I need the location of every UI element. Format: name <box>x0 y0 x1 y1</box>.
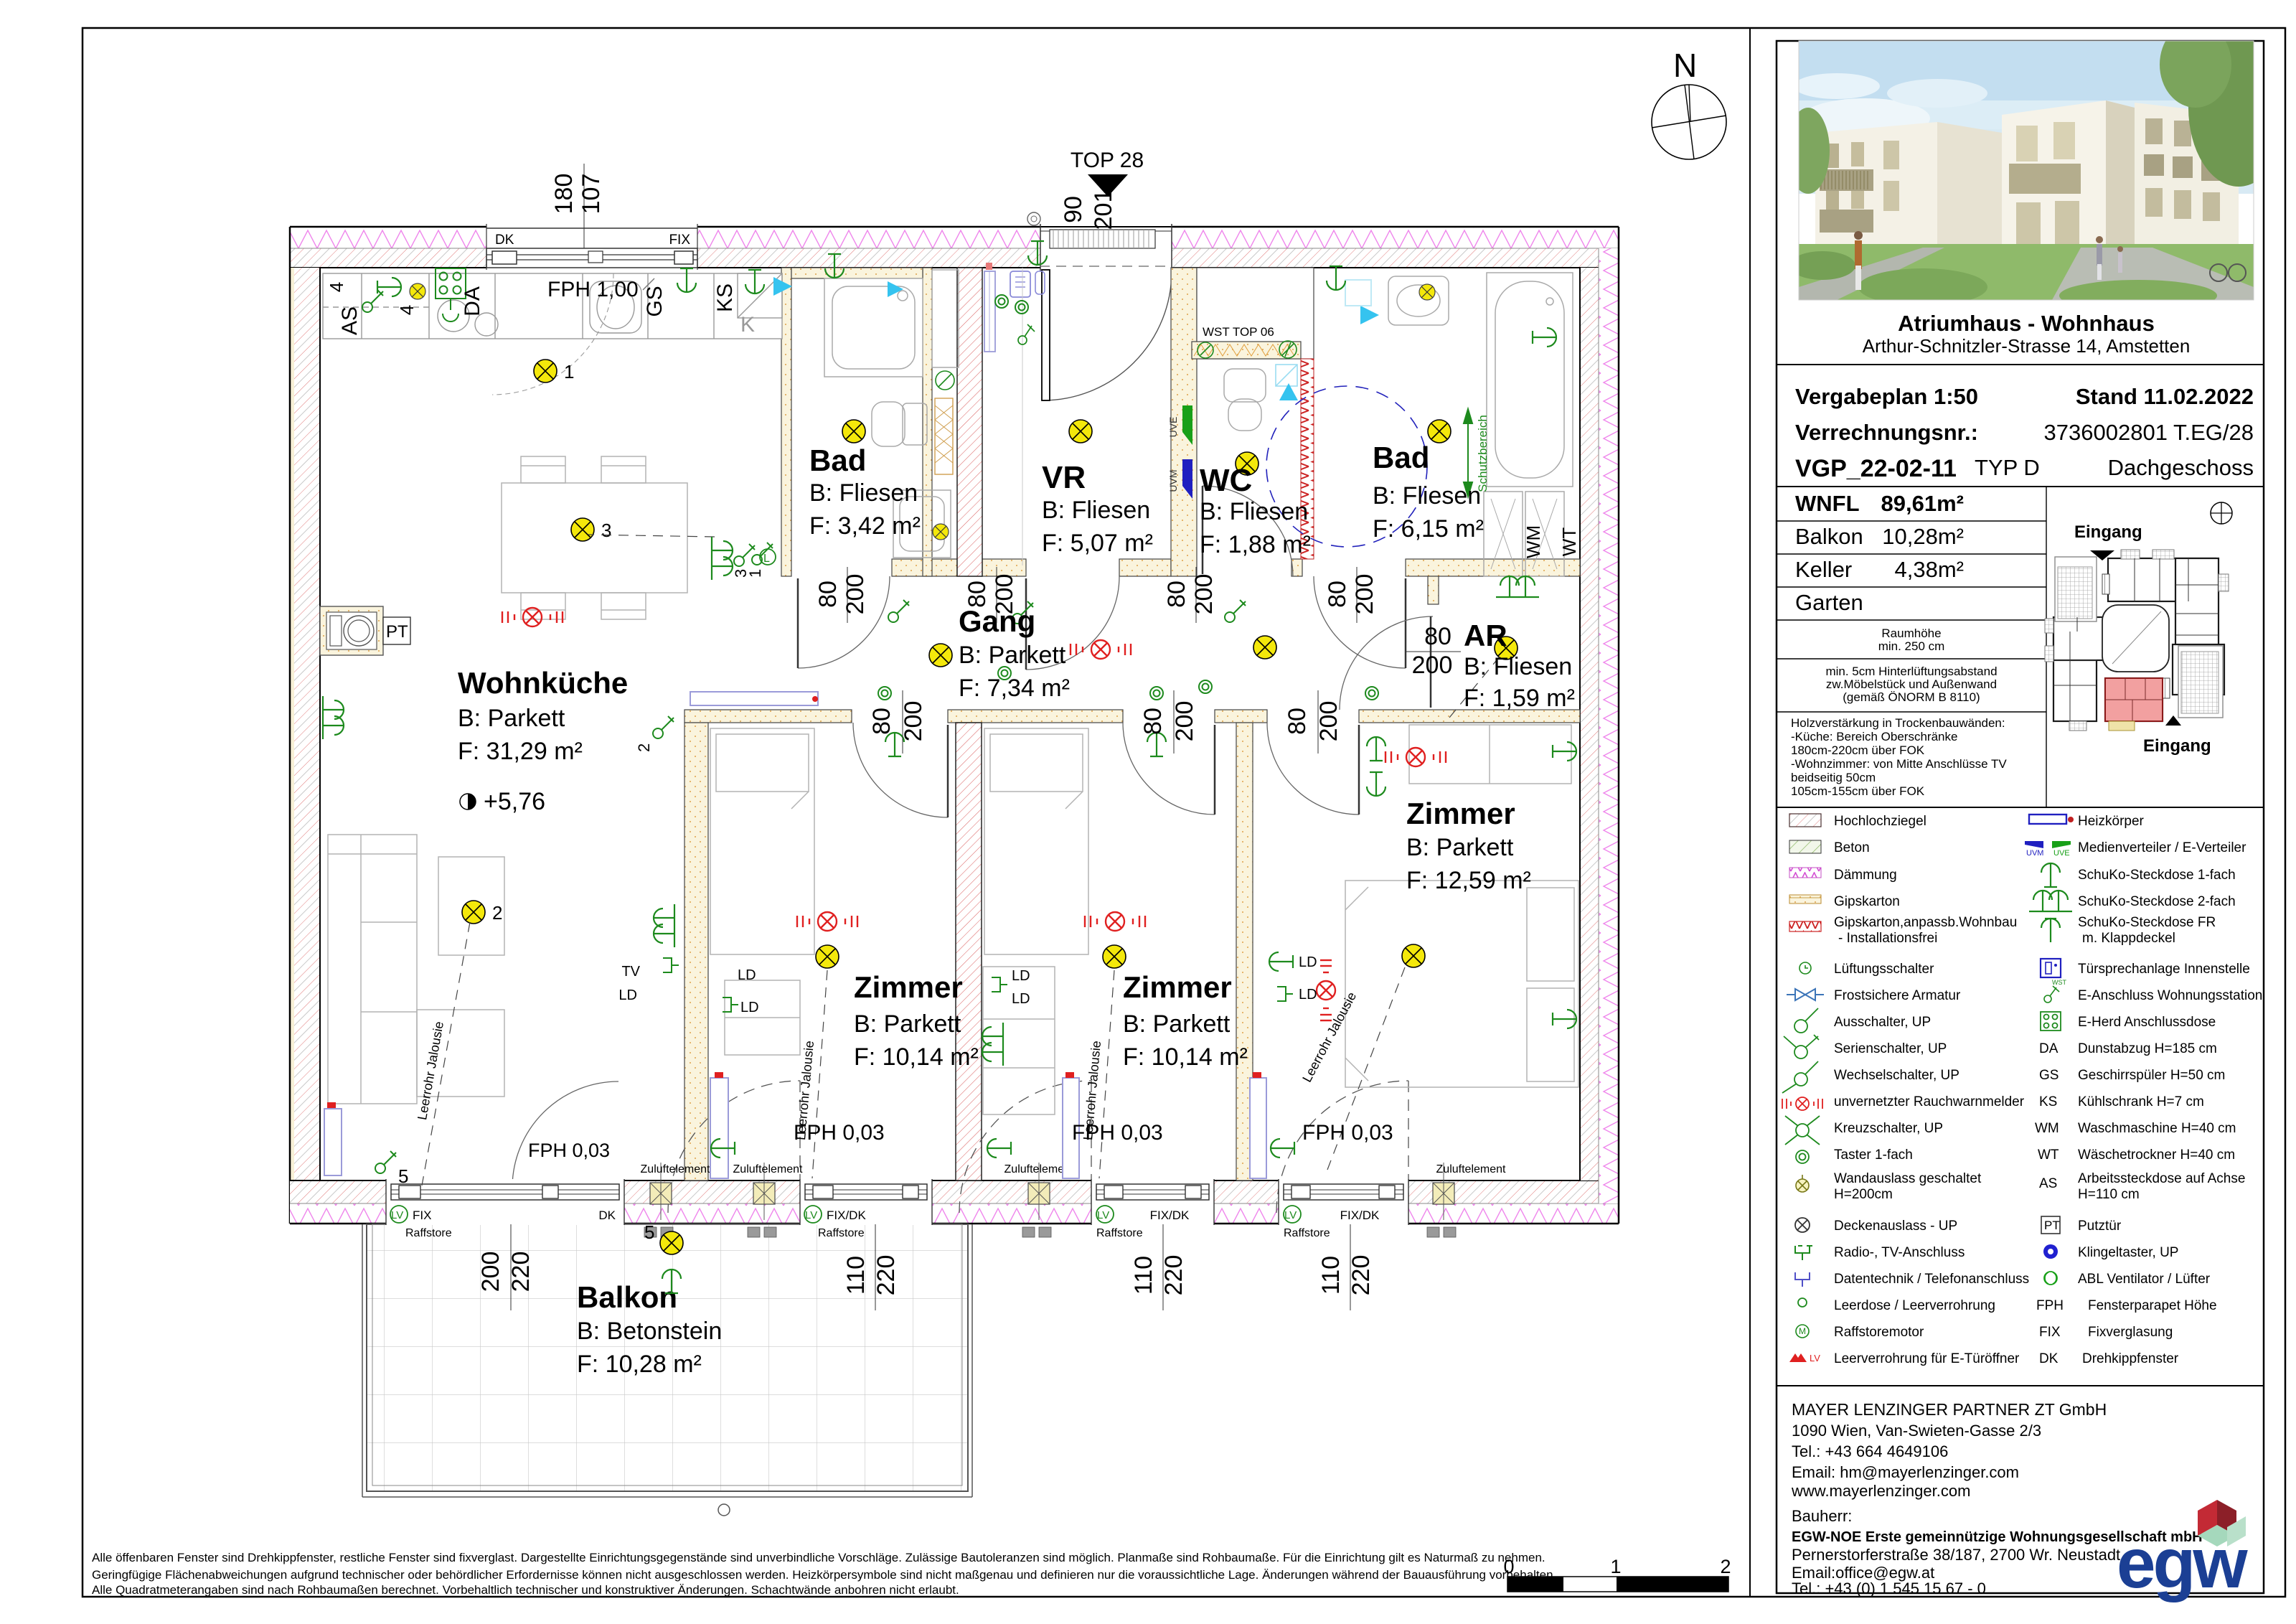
svg-text:Türsprechanlage Innenstelle: Türsprechanlage Innenstelle <box>2078 962 2250 977</box>
svg-text:FIX/DK: FIX/DK <box>1340 1208 1380 1222</box>
svg-text:Deckenauslass - UP: Deckenauslass - UP <box>1834 1219 1957 1234</box>
svg-text:Wohnküche: Wohnküche <box>458 666 628 700</box>
svg-text:Gipskarton,anpassb.Wohnbau: Gipskarton,anpassb.Wohnbau <box>1834 915 2017 930</box>
svg-text:F: 10,14 m²: F: 10,14 m² <box>1123 1043 1248 1071</box>
svg-text:Garten: Garten <box>1795 590 1863 615</box>
svg-text:DK: DK <box>495 233 514 248</box>
svg-text:FIX/DK: FIX/DK <box>827 1208 866 1222</box>
svg-text:Heizkörper: Heizkörper <box>2078 814 2145 829</box>
svg-text:WST TOP 06: WST TOP 06 <box>1203 325 1274 339</box>
svg-text:ABL Ventilator / Lüfter: ABL Ventilator / Lüfter <box>2078 1272 2211 1287</box>
svg-text:220: 220 <box>507 1252 535 1292</box>
svg-text:Eingang: Eingang <box>2143 736 2211 756</box>
svg-text:GS: GS <box>2039 1068 2059 1083</box>
svg-text:MAYER LENZINGER PARTNER ZT Gm: MAYER LENZINGER PARTNER ZT GmbH <box>1792 1400 2107 1419</box>
svg-text:PT: PT <box>386 622 408 642</box>
svg-text:Raffstore: Raffstore <box>405 1227 452 1239</box>
svg-text:PT: PT <box>2044 1219 2060 1232</box>
svg-text:Leerdose / Leerverrohrung: Leerdose / Leerverrohrung <box>1834 1298 1995 1313</box>
svg-text:-Küche: Bereich Oberschränke: -Küche: Bereich Oberschränke <box>1791 730 1957 743</box>
svg-text:www.mayerlenzinger.com: www.mayerlenzinger.com <box>1791 1482 1970 1500</box>
svg-text:Zuluftelement: Zuluftelement <box>733 1163 803 1175</box>
svg-text:UVM: UVM <box>2026 849 2043 858</box>
svg-text:VGP_22-02-11: VGP_22-02-11 <box>1795 455 1957 482</box>
svg-text:Wandauslass geschaltet: Wandauslass geschaltet <box>1834 1171 1982 1186</box>
svg-text:LV: LV <box>1097 1209 1109 1221</box>
svg-text:90: 90 <box>1060 196 1087 223</box>
svg-text:3: 3 <box>601 520 611 541</box>
svg-text:Klingeltaster, UP: Klingeltaster, UP <box>2078 1245 2178 1260</box>
svg-text:m. Klappdeckel: m. Klappdeckel <box>2082 931 2175 946</box>
svg-text:110: 110 <box>842 1256 870 1295</box>
svg-text:1090 Wien, Van-Swieten-Gasse 2: 1090 Wien, Van-Swieten-Gasse 2/3 <box>1792 1422 2041 1440</box>
svg-text:Email: hm@mayerlenzinger.com: Email: hm@mayerlenzinger.com <box>1792 1463 2019 1481</box>
svg-text:B: Fliesen: B: Fliesen <box>1464 653 1572 680</box>
svg-text:B: Parkett: B: Parkett <box>1123 1010 1231 1038</box>
svg-text:Alle Quadratmeterangaben sind: Alle Quadratmeterangaben sind nach Rohba… <box>92 1583 959 1597</box>
svg-text:LD: LD <box>738 967 756 983</box>
svg-text:WT: WT <box>1558 527 1580 557</box>
svg-text:SchuKo-Steckdose FR: SchuKo-Steckdose FR <box>2078 915 2216 930</box>
svg-text:200: 200 <box>1190 574 1218 615</box>
svg-text:80: 80 <box>868 708 895 735</box>
svg-text:200: 200 <box>1412 652 1453 679</box>
svg-text:Hochlochziegel: Hochlochziegel <box>1834 814 1926 829</box>
svg-text:zw.Möbelstück und Außenwand: zw.Möbelstück und Außenwand <box>1826 677 1997 691</box>
svg-text:Fixverglasung: Fixverglasung <box>2088 1325 2173 1340</box>
svg-text:B: Fliesen: B: Fliesen <box>809 479 918 507</box>
svg-text:2: 2 <box>492 902 502 924</box>
svg-text:Taster 1-fach: Taster 1-fach <box>1834 1147 1913 1163</box>
svg-text:Eingang: Eingang <box>2074 522 2142 542</box>
svg-text:WM: WM <box>1523 525 1544 558</box>
svg-text:Balkon: Balkon <box>577 1280 677 1314</box>
svg-text:B: Betonstein: B: Betonstein <box>577 1318 722 1345</box>
svg-text:+5,76: +5,76 <box>484 788 545 815</box>
svg-text:Ausschalter, UP: Ausschalter, UP <box>1834 1015 1931 1030</box>
svg-text:Dunstabzug H=185 cm: Dunstabzug H=185 cm <box>2078 1041 2217 1056</box>
svg-text:200: 200 <box>842 574 869 615</box>
svg-text:B: Fliesen: B: Fliesen <box>1200 498 1308 525</box>
svg-text:F: 10,14 m²: F: 10,14 m² <box>854 1043 979 1071</box>
svg-text:Raffstore: Raffstore <box>1284 1227 1330 1239</box>
svg-text:Zimmer: Zimmer <box>854 970 963 1004</box>
svg-text:SchuKo-Steckdose 1-fach: SchuKo-Steckdose 1-fach <box>2078 868 2236 883</box>
svg-text:-Wohnzimmer: von Mitte Anschlü: -Wohnzimmer: von Mitte Anschlüsse TV <box>1791 757 2007 771</box>
svg-text:220: 220 <box>1160 1255 1187 1296</box>
svg-text:unvernetzter Rauchwarnmelder: unvernetzter Rauchwarnmelder <box>1834 1094 2025 1109</box>
svg-text:Verrechnungsnr.:: Verrechnungsnr.: <box>1795 420 1978 445</box>
svg-text:200: 200 <box>1315 701 1342 742</box>
svg-text:FIX: FIX <box>669 233 690 248</box>
svg-text:B: Fliesen: B: Fliesen <box>1042 497 1150 524</box>
svg-text:2: 2 <box>635 743 653 752</box>
svg-text:Balkon: Balkon <box>1795 524 1863 549</box>
svg-text:FIX: FIX <box>413 1208 431 1222</box>
svg-text:Arbeitssteckdose auf Achse: Arbeitssteckdose auf Achse <box>2078 1171 2245 1186</box>
svg-text:F: 1,88 m²: F: 1,88 m² <box>1200 531 1311 558</box>
svg-text:beidseitig 50cm: beidseitig 50cm <box>1791 771 1876 784</box>
svg-text:Bad: Bad <box>809 443 866 477</box>
svg-text:220: 220 <box>872 1255 900 1296</box>
svg-text:80: 80 <box>1424 623 1452 650</box>
svg-text:Radio-, TV-Anschluss: Radio-, TV-Anschluss <box>1834 1245 1965 1260</box>
svg-text:80: 80 <box>964 581 991 608</box>
svg-text:1: 1 <box>746 569 764 578</box>
svg-text:B: Parkett: B: Parkett <box>1406 834 1514 861</box>
svg-text:80: 80 <box>1284 708 1311 735</box>
svg-text:0: 0 <box>1503 1556 1514 1577</box>
svg-text:Beton: Beton <box>1834 840 1870 855</box>
svg-text:AS: AS <box>338 306 362 335</box>
svg-text:LV: LV <box>1810 1353 1820 1363</box>
svg-text:200: 200 <box>900 701 927 742</box>
svg-text:H=200cm: H=200cm <box>1834 1187 1893 1202</box>
svg-text:LD: LD <box>740 1000 759 1015</box>
svg-text:220: 220 <box>1347 1255 1375 1296</box>
svg-text:Raumhöhe: Raumhöhe <box>1881 626 1941 640</box>
svg-text:E-Anschluss Wohnungsstation: E-Anschluss Wohnungsstation <box>2078 988 2262 1003</box>
svg-text:B: Fliesen: B: Fliesen <box>1373 482 1481 510</box>
svg-text:2: 2 <box>1720 1556 1731 1577</box>
svg-text:Zimmer: Zimmer <box>1123 970 1232 1004</box>
svg-text:GS: GS <box>643 286 667 316</box>
svg-text:Arthur-Schnitzler-Strasse 14,: Arthur-Schnitzler-Strasse 14, Amstetten <box>1863 335 2191 357</box>
svg-text:LD: LD <box>618 987 637 1003</box>
svg-text:Zimmer: Zimmer <box>1406 797 1515 830</box>
svg-text:DK: DK <box>598 1208 616 1222</box>
svg-text:200: 200 <box>1351 574 1378 615</box>
svg-text:4,38m²: 4,38m² <box>1895 557 1964 582</box>
svg-text:F: 31,29 m²: F: 31,29 m² <box>458 738 583 765</box>
svg-text:F: 10,28 m²: F: 10,28 m² <box>577 1351 702 1378</box>
svg-text:LD: LD <box>1012 991 1030 1007</box>
svg-text:WST: WST <box>2052 979 2066 986</box>
svg-text:M: M <box>1799 1326 1806 1336</box>
svg-text:Frostsichere Armatur: Frostsichere Armatur <box>1834 988 1961 1003</box>
svg-text:E-Herd Anschlussdose: E-Herd Anschlussdose <box>2078 1015 2216 1030</box>
svg-text:Tel.: +43 (0) 1 545 15 67 - 0: Tel.: +43 (0) 1 545 15 67 - 0 <box>1792 1580 1986 1597</box>
svg-text:Alle öffenbaren Fenster sind D: Alle öffenbaren Fenster sind Drehkippfen… <box>92 1551 1545 1564</box>
svg-text:min. 5cm Hinterlüftungsabstand: min. 5cm Hinterlüftungsabstand <box>1825 665 1997 678</box>
svg-text:Kühlschrank H=7 cm: Kühlschrank H=7 cm <box>2078 1094 2204 1109</box>
svg-text:FPH 0,03: FPH 0,03 <box>1302 1121 1393 1145</box>
svg-text:Holzverstärkung in Trockenbauw: Holzverstärkung in Trockenbauwänden: <box>1791 716 2005 730</box>
svg-text:- Installationsfrei: - Installationsfrei <box>1838 931 1937 946</box>
svg-text:K: K <box>740 313 755 337</box>
svg-text:KS: KS <box>2039 1094 2057 1109</box>
svg-text:Zuluftelement: Zuluftelement <box>1436 1163 1506 1175</box>
svg-text:FIX: FIX <box>2039 1325 2061 1340</box>
svg-text:Drehkippfenster: Drehkippfenster <box>2082 1351 2179 1366</box>
svg-text:89,61m²: 89,61m² <box>1881 491 1964 516</box>
svg-text:Dämmung: Dämmung <box>1834 868 1897 883</box>
svg-text:LV: LV <box>805 1209 817 1221</box>
svg-text:4: 4 <box>396 305 418 315</box>
svg-text:80: 80 <box>1139 708 1167 735</box>
svg-text:F: 6,15 m²: F: 6,15 m² <box>1373 515 1484 543</box>
svg-text:VR: VR <box>1042 460 1086 495</box>
svg-text:Raffstore: Raffstore <box>1096 1227 1143 1239</box>
svg-text:TYP D: TYP D <box>1975 455 2040 480</box>
svg-text:TOP 28: TOP 28 <box>1071 149 1144 172</box>
svg-text:DK: DK <box>2039 1351 2059 1366</box>
svg-text:80: 80 <box>814 581 842 608</box>
svg-text:Bad: Bad <box>1373 441 1429 474</box>
svg-text:SchuKo-Steckdose 2-fach: SchuKo-Steckdose 2-fach <box>2078 894 2236 909</box>
svg-text:F: 5,07 m²: F: 5,07 m² <box>1042 530 1153 557</box>
svg-text:UVM: UVM <box>1167 469 1179 492</box>
svg-text:F: 12,59 m²: F: 12,59 m² <box>1406 867 1531 894</box>
svg-text:FPH: FPH <box>2036 1298 2064 1313</box>
svg-text:UVE: UVE <box>2053 849 2070 858</box>
svg-text:10,28m²: 10,28m² <box>1882 524 1964 549</box>
svg-text:Dachgeschoss: Dachgeschoss <box>2108 455 2254 480</box>
svg-text:F: 3,42 m²: F: 3,42 m² <box>809 512 921 540</box>
svg-text:Schutzbereich: Schutzbereich <box>1476 415 1490 492</box>
svg-text:TV: TV <box>621 964 640 980</box>
svg-text:Geringfügige Flächenabweichung: Geringfügige Flächenabweichungen aufgrun… <box>92 1568 1556 1582</box>
svg-text:110: 110 <box>1130 1256 1157 1295</box>
svg-text:5: 5 <box>644 1221 654 1243</box>
svg-text:Lüftungsschalter: Lüftungsschalter <box>1834 962 1934 977</box>
svg-text:B: Parkett: B: Parkett <box>959 642 1066 669</box>
svg-text:Wechselschalter, UP: Wechselschalter, UP <box>1834 1068 1959 1083</box>
svg-text:Datentechnik / Telefonanschlus: Datentechnik / Telefonanschluss <box>1834 1272 2029 1287</box>
svg-text:FPH 0,03: FPH 0,03 <box>794 1121 885 1145</box>
svg-text:WM: WM <box>2035 1121 2059 1136</box>
svg-text:Vergabeplan 1:50: Vergabeplan 1:50 <box>1795 384 1978 409</box>
svg-text:KS: KS <box>713 283 737 312</box>
svg-text:H=110 cm: H=110 cm <box>2078 1187 2140 1202</box>
svg-text:Putztür: Putztür <box>2078 1219 2122 1234</box>
svg-text:Serienschalter, UP: Serienschalter, UP <box>1834 1041 1947 1056</box>
svg-text:180cm-220cm über FOK: 180cm-220cm über FOK <box>1791 743 1925 757</box>
svg-text:LD: LD <box>1012 968 1030 984</box>
svg-text:F: 1,59 m²: F: 1,59 m² <box>1464 685 1575 712</box>
svg-text:5: 5 <box>398 1165 408 1187</box>
svg-text:DA: DA <box>461 286 484 316</box>
svg-text:Pernerstorferstraße 38/187, 27: Pernerstorferstraße 38/187, 2700 Wr. Neu… <box>1792 1546 2120 1564</box>
svg-text:110: 110 <box>1317 1256 1345 1295</box>
svg-text:AR: AR <box>1464 619 1507 652</box>
svg-text:Raffstore: Raffstore <box>818 1227 865 1239</box>
svg-text:Tel.: +43 664 4649106: Tel.: +43 664 4649106 <box>1792 1442 1948 1460</box>
svg-text:200: 200 <box>1171 701 1198 742</box>
svg-text:Keller: Keller <box>1795 557 1852 582</box>
svg-text:F: 7,34 m²: F: 7,34 m² <box>959 675 1070 702</box>
svg-text:min. 250 cm: min. 250 cm <box>1878 639 1945 653</box>
svg-text:Wäschetrockner H=40 cm: Wäschetrockner H=40 cm <box>2078 1147 2235 1163</box>
svg-text:Atriumhaus - Wohnhaus: Atriumhaus - Wohnhaus <box>1898 311 2155 336</box>
svg-text:Fensterparapet Höhe: Fensterparapet Höhe <box>2088 1298 2217 1313</box>
svg-text:UVE: UVE <box>1167 417 1179 438</box>
svg-text:AS: AS <box>2039 1176 2057 1191</box>
svg-text:Bauherr:: Bauherr: <box>1792 1507 1852 1525</box>
svg-text:Kreuzschalter, UP: Kreuzschalter, UP <box>1834 1121 1943 1136</box>
svg-text:Geschirrspüler H=50 cm: Geschirrspüler H=50 cm <box>2078 1068 2225 1083</box>
svg-text:FPH 1,00: FPH 1,00 <box>547 278 639 301</box>
svg-text:Zuluftelement: Zuluftelement <box>641 1163 710 1175</box>
svg-text:107: 107 <box>578 174 605 215</box>
svg-text:B: Parkett: B: Parkett <box>854 1010 961 1038</box>
svg-text:80: 80 <box>1324 581 1351 608</box>
svg-text:Medienverteiler / E-Verteiler: Medienverteiler / E-Verteiler <box>2078 840 2246 855</box>
svg-text:200: 200 <box>477 1252 504 1292</box>
svg-text:L: L <box>763 553 770 565</box>
svg-text:WT: WT <box>2038 1147 2059 1163</box>
svg-text:200: 200 <box>991 574 1018 615</box>
svg-text:WNFL: WNFL <box>1795 491 1860 516</box>
svg-text:Gipskarton: Gipskarton <box>1834 894 1900 909</box>
svg-text:WC: WC <box>1200 463 1252 498</box>
svg-text:Raffstoremotor: Raffstoremotor <box>1834 1325 1924 1340</box>
svg-text:LV: LV <box>391 1209 403 1221</box>
svg-text:80: 80 <box>1163 581 1190 608</box>
svg-text:N: N <box>1673 47 1697 84</box>
svg-text:FPH 0,03: FPH 0,03 <box>1072 1121 1163 1145</box>
svg-text:Leerverrohrung für E-Türöffner: Leerverrohrung für E-Türöffner <box>1834 1351 2020 1366</box>
svg-text:4: 4 <box>326 282 347 292</box>
svg-text:1: 1 <box>564 361 574 382</box>
svg-text:201: 201 <box>1090 189 1117 230</box>
svg-text:LD: LD <box>1299 987 1317 1003</box>
svg-text:105cm-155cm über FOK: 105cm-155cm über FOK <box>1791 784 1925 798</box>
svg-text:Waschmaschine H=40 cm: Waschmaschine H=40 cm <box>2078 1121 2236 1136</box>
svg-text:1: 1 <box>1610 1556 1621 1577</box>
svg-text:B: Parkett: B: Parkett <box>458 705 565 732</box>
svg-text:180: 180 <box>550 174 578 215</box>
svg-text:FIX/DK: FIX/DK <box>1150 1208 1190 1222</box>
svg-text:FPH 0,03: FPH 0,03 <box>528 1140 610 1161</box>
svg-text:(gemäß ÖNORM B 8110): (gemäß ÖNORM B 8110) <box>1843 690 1980 704</box>
svg-text:3736002801 T.EG/28: 3736002801 T.EG/28 <box>2044 420 2254 445</box>
svg-text:LV: LV <box>1284 1209 1297 1221</box>
svg-text:DA: DA <box>2039 1041 2059 1056</box>
svg-text:LD: LD <box>1299 954 1317 970</box>
svg-text:Stand 11.02.2022: Stand 11.02.2022 <box>2076 384 2254 409</box>
